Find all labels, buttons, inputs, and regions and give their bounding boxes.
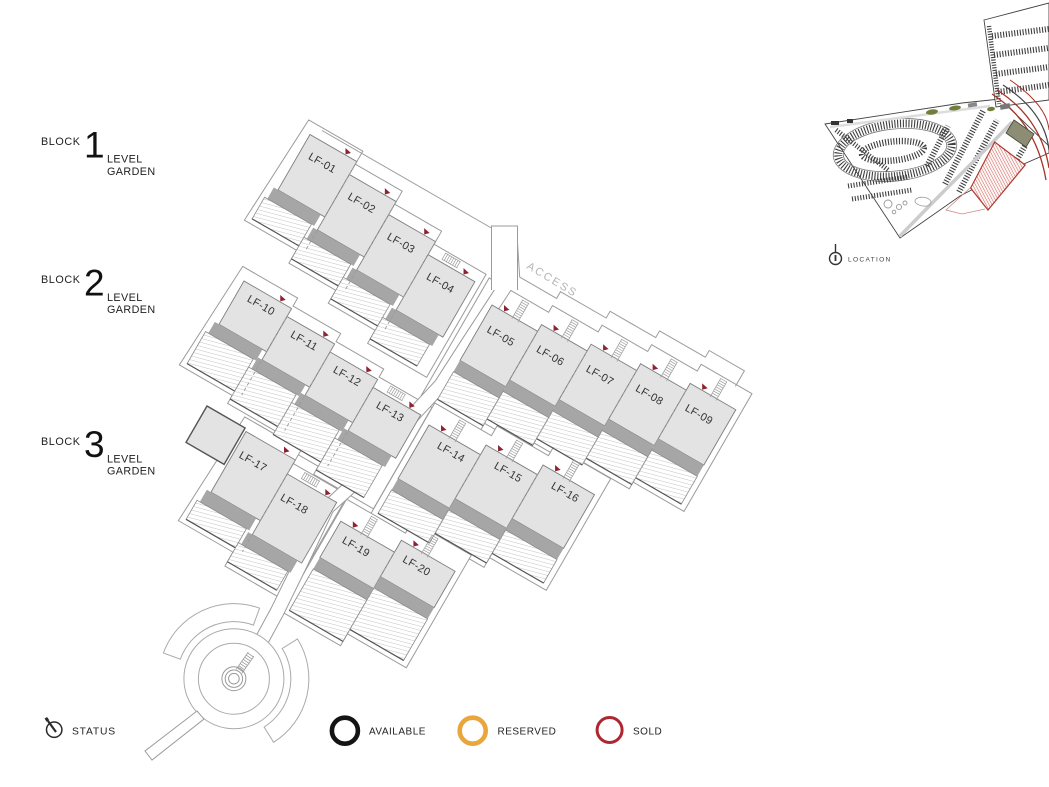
svg-text:RESERVED: RESERVED bbox=[498, 727, 557, 738]
svg-text:GARDEN: GARDEN bbox=[107, 166, 156, 178]
svg-text:GARDEN: GARDEN bbox=[107, 304, 156, 316]
svg-text:GARDEN: GARDEN bbox=[107, 466, 156, 478]
svg-text:AVAILABLE: AVAILABLE bbox=[369, 727, 426, 738]
svg-text:LEVEL: LEVEL bbox=[107, 292, 143, 304]
svg-text:1: 1 bbox=[84, 125, 105, 166]
svg-text:BLOCK: BLOCK bbox=[41, 274, 81, 286]
svg-text:LEVEL: LEVEL bbox=[107, 453, 143, 465]
svg-text:STATUS: STATUS bbox=[72, 727, 116, 738]
svg-text:2: 2 bbox=[84, 263, 105, 304]
svg-text:LOCATION: LOCATION bbox=[848, 257, 892, 264]
svg-text:SOLD: SOLD bbox=[633, 727, 662, 738]
svg-text:BLOCK: BLOCK bbox=[41, 436, 81, 448]
svg-text:LEVEL: LEVEL bbox=[107, 154, 143, 166]
svg-text:BLOCK: BLOCK bbox=[41, 136, 81, 148]
svg-text:3: 3 bbox=[84, 424, 105, 465]
